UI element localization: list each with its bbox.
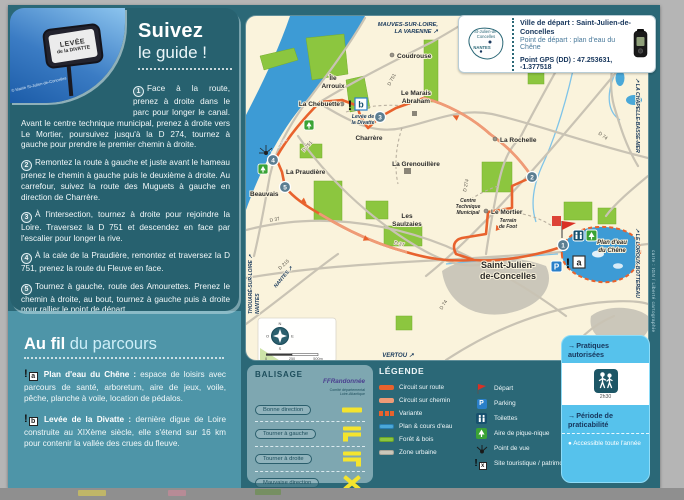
compass-o: O xyxy=(266,334,269,339)
legend-variante: Variante xyxy=(379,407,475,420)
label-praudiere: La Praudière xyxy=(286,169,326,176)
scan-artifact xyxy=(255,489,281,495)
legend-label: Circuit sur route xyxy=(399,384,444,391)
label-plan-deau-1: Plan d'eau xyxy=(597,240,627,246)
guide-title-light: le guide ! xyxy=(138,43,234,63)
scale-0: 0 xyxy=(265,357,267,360)
point-depart-line: Point de départ : plan d'eau du Chêne xyxy=(520,37,632,51)
levee-sign: LEVÉE de la DIVATTE xyxy=(42,23,104,70)
levee-sign-plate: LEVÉE de la DIVATTE xyxy=(48,29,98,64)
guide-step-4: 4À la cale de la Praudière, remontez et … xyxy=(21,251,230,275)
guide-step-5: 5Tournez à gauche, route des Amourettes.… xyxy=(21,282,230,311)
legend-urbaine: Zone urbaine xyxy=(379,446,475,459)
periode-item: ● Accessible toute l'année xyxy=(562,434,649,447)
sign-nantes-vertical: NANTES xyxy=(255,293,261,314)
balisage-header: BALISAGE FFRandonnée Comité départementa… xyxy=(255,370,365,397)
road-d74-south: D 74 xyxy=(439,299,450,311)
mark-bonne-direction-icon xyxy=(339,402,365,418)
scan-artifact xyxy=(78,490,106,496)
label-saulzaies-1: Les xyxy=(401,213,413,220)
label-saint-julien-2: de-Concelles xyxy=(480,271,536,281)
balisage-label: Tourner à droite xyxy=(255,454,312,464)
circuit-route-swatch xyxy=(379,385,394,390)
department-sketch-map: St-Julien-de- Concelles NANTES xyxy=(464,21,508,67)
guide-title-dots xyxy=(138,68,232,70)
balisage-label: Bonne direction xyxy=(255,405,311,415)
site-touristique-icon: !x xyxy=(475,458,488,470)
pratiques-activity: 2h30 xyxy=(562,363,649,405)
parcours-a-lead: Plan d'eau du Chêne : xyxy=(44,370,136,379)
road-d274: D 274 xyxy=(462,178,471,192)
parking-icon: P xyxy=(475,399,488,409)
sign-loroux-bottereau: ↗ LE LOROUX-BOTTEREAU xyxy=(634,228,640,298)
sign-chapelle-basse-mer: ↗ LA CHAPELLE-BASSE-MER xyxy=(634,78,640,153)
label-ile: Île xyxy=(328,73,337,82)
scale-250: 250 xyxy=(289,357,295,360)
marker-1: 1 xyxy=(561,243,565,250)
au-fil-title-light: du parcours xyxy=(70,335,157,353)
marker-3: 3 xyxy=(378,115,382,122)
compass-s: S xyxy=(279,346,282,351)
gps-device-icon xyxy=(632,29,650,59)
legend-label: Point de vue xyxy=(494,445,530,452)
label-arrouix: Arrouix xyxy=(321,83,345,90)
site-b-letter: b xyxy=(358,100,364,110)
label-marais-2: Abraham xyxy=(402,98,430,105)
balisage-title: BALISAGE xyxy=(255,370,303,379)
photo-credit: © Mairie St-Julien-de-Concelles xyxy=(11,75,67,93)
point-de-vue-icon xyxy=(475,444,488,454)
label-charrere: Charrère xyxy=(355,135,382,142)
label-saint-julien-1: Saint-Julien- xyxy=(481,260,535,270)
forest-patches xyxy=(260,34,616,330)
parcours-b-lead: Levée de la Divatte : xyxy=(44,415,131,424)
site-b-icon: !b xyxy=(24,415,38,424)
label-centre-3: Municipal xyxy=(456,210,480,216)
step-number-badge: 5 xyxy=(21,284,32,295)
toilettes-icon xyxy=(475,413,488,424)
site-a-icon: !a xyxy=(24,370,38,379)
marker-5: 5 xyxy=(283,185,287,192)
arrow-icon: → xyxy=(568,341,575,350)
marker-4: 4 xyxy=(271,158,275,165)
foret-swatch xyxy=(379,437,394,442)
exclamation-icon: ! xyxy=(348,97,353,113)
parcours-item-b: !b Levée de la Divatte : dernière digue … xyxy=(24,412,226,449)
legend-label: Variante xyxy=(399,410,422,417)
guide-title-bold: Suivez xyxy=(138,20,234,43)
balisage-row-tourner-droite: Tourner à droite xyxy=(255,446,365,471)
road-d751-north: D 751 xyxy=(386,73,397,87)
pratiques-title: →Pratiques autorisées xyxy=(562,336,649,363)
step-number-badge: 4 xyxy=(21,253,32,264)
periode-title: →Période de praticabilité xyxy=(562,405,649,434)
label-mortier: Le Mortier xyxy=(491,209,523,216)
lake-island xyxy=(613,263,623,269)
step-text: Tournez à gauche, route des Amourettes. … xyxy=(21,282,230,311)
departure-info-box: St-Julien-de- Concelles NANTES Ville de … xyxy=(458,15,656,73)
circuit-chemin-swatch xyxy=(379,398,394,403)
scan-artifact xyxy=(168,490,186,496)
guide-title: Suivez le guide ! xyxy=(138,20,234,70)
label-marais-1: Le Marais xyxy=(401,90,431,97)
legend-label: Zone urbaine xyxy=(399,449,437,456)
label-rochelle: La Rochelle xyxy=(500,137,537,144)
step-text: À l'intersection, tournez à droite pour … xyxy=(21,210,230,243)
balisage-row-bonne-direction: Bonne direction xyxy=(255,399,365,421)
toilettes-icon xyxy=(573,230,584,241)
balisage-label: Mauvaise direction xyxy=(255,478,319,488)
balisage-row-tourner-gauche: Tourner à gauche xyxy=(255,421,365,446)
label-saulzaies-2: Saulzaies xyxy=(392,221,422,228)
au-fil-title: Au fil du parcours xyxy=(24,335,226,354)
marker-2: 2 xyxy=(530,175,534,182)
label-coudrouse: Coudrouse xyxy=(397,53,432,60)
legende-left-column: Circuit sur route Circuit sur chemin Var… xyxy=(379,381,475,471)
compass-e: E xyxy=(291,334,294,339)
ffrandonnee-logo: FFRandonnée Comité départemental Loire-A… xyxy=(323,370,365,397)
legend-label: Parking xyxy=(494,400,516,407)
label-plan-deau-2: du Chêne xyxy=(598,248,626,254)
sketch-nantes: NANTES xyxy=(473,45,490,50)
hiking-icon xyxy=(594,369,618,393)
ville-depart-line: Ville de départ : Saint-Julien-de-Concel… xyxy=(520,18,632,36)
exclamation-icon: ! xyxy=(24,413,28,425)
legend-label: Circuit sur chemin xyxy=(399,397,450,404)
site-marker-b: ! b xyxy=(348,97,367,113)
label-chebuette: La Chebuette xyxy=(299,101,341,108)
departure-info-text: Ville de départ : Saint-Julien-de-Concel… xyxy=(512,18,632,71)
scale-500m: 500m xyxy=(313,357,323,360)
guide-steps: 1Face à la route, prenez à droite dans l… xyxy=(21,84,230,311)
legend-foret: Forêt & bois xyxy=(379,433,475,446)
sign-vertou: VERTOU ↗ xyxy=(382,353,414,359)
legend-circuit-chemin: Circuit sur chemin xyxy=(379,394,475,407)
picnic-icon xyxy=(475,428,488,439)
eau-swatch xyxy=(379,424,394,429)
sign-mauves-line1: MAUVES-SUR-LOIRE, xyxy=(378,22,439,28)
step-number-badge: 2 xyxy=(21,160,32,171)
legend-label: Forêt & bois xyxy=(399,436,433,443)
balisage-label: Tourner à gauche xyxy=(255,429,316,439)
site-letter-box: a xyxy=(29,372,38,381)
mark-tourner-droite-icon xyxy=(339,450,365,468)
step-number-badge: 3 xyxy=(21,212,32,223)
parking-icon: P xyxy=(551,261,562,272)
urbaine-swatch xyxy=(379,450,394,455)
guide-step-3: 3À l'intersection, tournez à droite pour… xyxy=(21,210,230,245)
step-number-badge: 1 xyxy=(133,86,144,97)
au-fil-du-parcours-section: Au fil du parcours !a Plan d'eau du Chên… xyxy=(24,335,226,457)
sketch-town-line2: Concelles xyxy=(477,34,495,39)
bullet-icon: ● xyxy=(568,440,572,447)
site-letter-box: b xyxy=(29,417,38,426)
label-terrain-2: de Foot xyxy=(499,224,517,230)
legend-label: Toilettes xyxy=(494,415,517,422)
legend-label: Plan & cours d'eau xyxy=(399,423,452,430)
balisage-panel: BALISAGE FFRandonnée Comité départementa… xyxy=(247,365,373,483)
sign-mauves-line2: LA VARENNE ↗ xyxy=(394,29,439,35)
label-beauvais: Beauvais xyxy=(250,191,279,198)
legend-label: Site touristique / patrimoine xyxy=(494,460,571,467)
legend-circuit-route: Circuit sur route xyxy=(379,381,475,394)
arrow-icon: → xyxy=(568,411,575,420)
picnic-icons xyxy=(258,120,597,241)
guide-panel: LEVÉE de la DIVATTE © Mairie St-Julien-d… xyxy=(10,8,239,311)
au-fil-dots xyxy=(24,357,224,359)
label-levee-2: la Divatte xyxy=(351,120,374,126)
au-fil-title-bold: Au fil xyxy=(24,335,65,353)
compass-scale-box: N E S O 0 250 500m xyxy=(258,318,336,360)
legend-label: Aire de pique-nique xyxy=(494,430,549,437)
legend-label: Départ xyxy=(494,385,513,392)
parcours-item-a: !a Plan d'eau du Chêne : espace de loisi… xyxy=(24,367,226,404)
flag-icon xyxy=(475,383,488,395)
exclamation-icon: ! xyxy=(566,255,571,271)
sign-pole xyxy=(67,66,74,96)
ffrandonnee-wordmark: FFRandonnée xyxy=(323,378,365,385)
step-text: Remontez la route à gauche et juste avan… xyxy=(21,158,230,202)
ffr-subtitle-2: Loire-Atlantique xyxy=(323,392,365,396)
road-d74-east: D 74 xyxy=(597,131,609,142)
parking-letter: P xyxy=(554,263,560,272)
variante-swatch xyxy=(379,411,394,416)
map-credit: carte : IGN / Liberté cartographie xyxy=(651,250,656,333)
label-grenouillere: La Grenouillère xyxy=(392,161,440,168)
compass-n: N xyxy=(279,321,282,326)
exclamation-icon: ! xyxy=(24,368,28,380)
step-text: À la cale de la Praudière, remontez et t… xyxy=(21,251,230,273)
sign-thouare: THOUARÉ-SUR-LOIRE ↗ xyxy=(246,254,254,314)
duration-label: 2h30 xyxy=(600,394,612,400)
legend-eau: Plan & cours d'eau xyxy=(379,420,475,433)
guide-step-2: 2Remontez la route à gauche et juste ava… xyxy=(21,158,230,204)
gps-line: Point GPS (DD) : 47.253631, -1.377518 xyxy=(520,57,632,71)
brochure-page: LEVÉE de la DIVATTE © Mairie St-Julien-d… xyxy=(8,5,660,488)
mark-tourner-gauche-icon xyxy=(339,425,365,443)
pratiques-panel: →Pratiques autorisées 2h30 →Période de p… xyxy=(561,335,650,483)
